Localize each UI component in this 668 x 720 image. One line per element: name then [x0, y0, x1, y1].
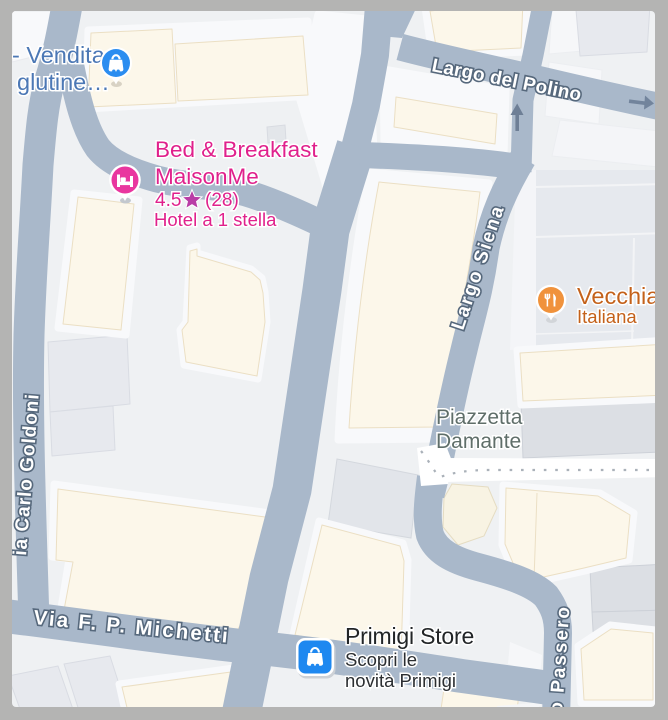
svg-text:MaisonMe: MaisonMe	[155, 164, 259, 189]
svg-text:Piazzetta: Piazzetta	[436, 406, 523, 429]
svg-text:Hotel a 1 stella: Hotel a 1 stella	[154, 209, 277, 230]
svg-text:(28): (28)	[205, 190, 239, 211]
svg-text:- Vendita: - Vendita	[12, 42, 106, 68]
svg-text:Bed & Breakfast: Bed & Breakfast	[155, 137, 318, 162]
svg-text:glutine…: glutine…	[17, 69, 110, 95]
svg-text:Damante: Damante	[436, 430, 521, 453]
svg-text:Primigi Store: Primigi Store	[345, 623, 474, 649]
svg-text:Italiana: Italiana	[577, 306, 637, 327]
svg-text:Scopri le: Scopri le	[345, 649, 417, 670]
svg-text:novità Primigi: novità Primigi	[345, 670, 456, 691]
svg-text:4.5: 4.5	[155, 190, 181, 211]
